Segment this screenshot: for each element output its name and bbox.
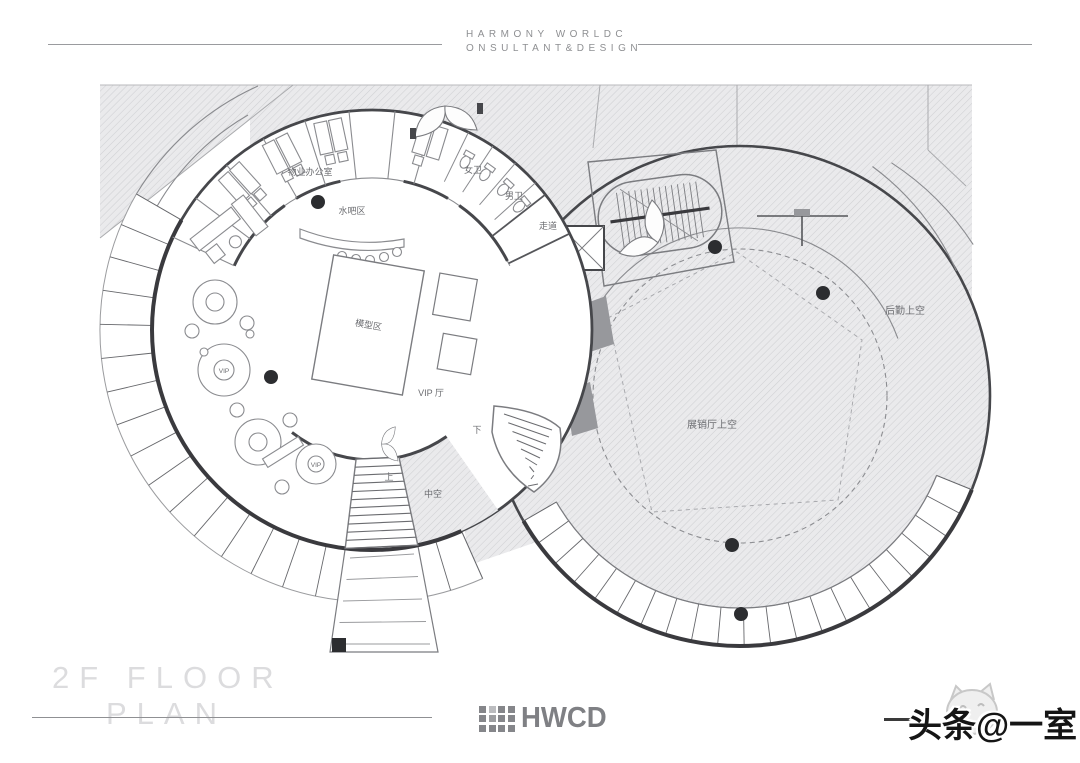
page: HARMONY WORLDC ONSULTANT&DESIGN <box>0 0 1080 763</box>
title-rule <box>32 717 432 718</box>
label-up: 上 <box>384 472 393 482</box>
page-title-line2: PLAN <box>106 696 284 732</box>
label-water-bar: 水吧区 <box>338 205 365 216</box>
floor-plan-drawing: VIP VIP <box>0 0 1080 763</box>
label-vip-hall: VIP 厅 <box>418 388 444 398</box>
label-property-office: 物业办公室 <box>287 166 332 177</box>
watermark-text: 头条@一室 <box>908 698 1077 747</box>
label-down: 下 <box>472 425 481 435</box>
vip-booth-label: VIP <box>219 368 229 375</box>
page-title-line1: 2F FLOOR <box>52 660 284 696</box>
label-logistics-void: 后勤上空 <box>885 304 925 317</box>
label-corridor: 走道 <box>539 220 557 231</box>
hwcd-logo-grid-icon <box>479 706 515 732</box>
label-exhibition-void: 展销厅上空 <box>687 418 737 431</box>
page-title: 2F FLOOR PLAN <box>52 660 284 732</box>
hwcd-logo-text: HWCD <box>521 702 607 735</box>
label-men-wc: 男卫 <box>505 191 523 201</box>
hwcd-logo: HWCD <box>479 702 611 735</box>
label-atrium: 中空 <box>424 488 442 499</box>
label-women-wc: 女卫 <box>464 164 482 175</box>
vip-booth-label: VIP <box>311 462 321 469</box>
